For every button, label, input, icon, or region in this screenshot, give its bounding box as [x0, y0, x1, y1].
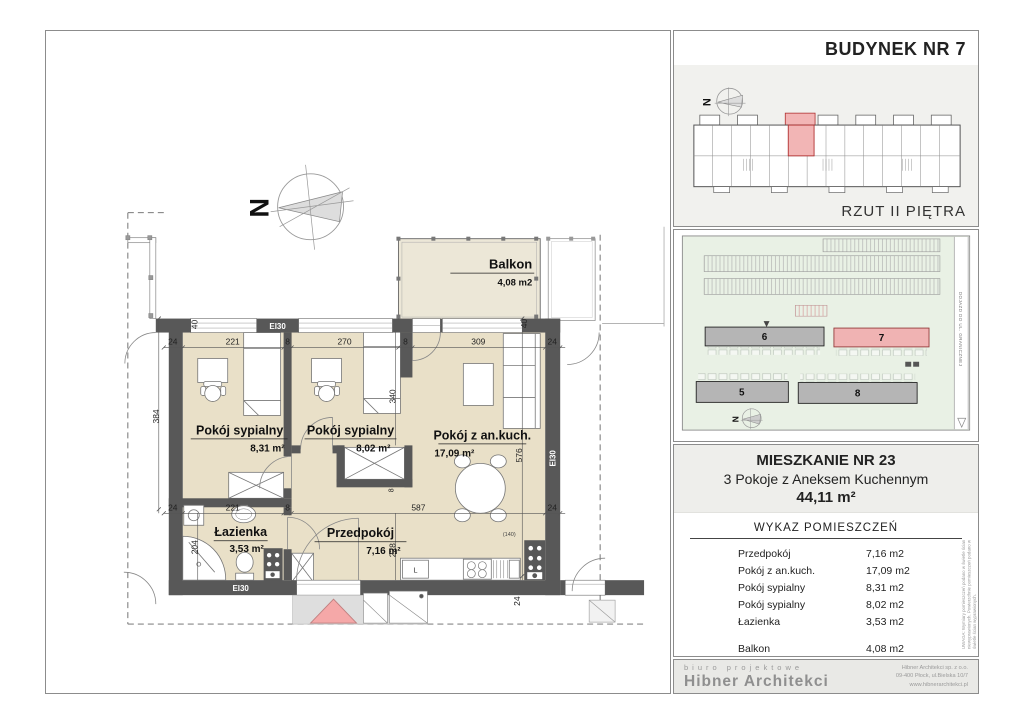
- adjacent-wing-lines: [602, 227, 664, 327]
- dim: (140): [503, 532, 516, 538]
- building-number: 5: [739, 387, 745, 398]
- hall-cabinet: [292, 553, 314, 582]
- studio-logo: biuro projektowe Hibner Architekci: [684, 663, 829, 691]
- toilet: [236, 552, 254, 580]
- room-list-title: WYKAZ POMIESZCZEŃ: [674, 522, 978, 534]
- floor-plan-svg: N Balkon 4,08 m2: [46, 31, 670, 693]
- svg-text:Łazienka: Łazienka: [214, 525, 268, 539]
- svg-text:8,31 m²: 8,31 m²: [250, 443, 285, 454]
- building-number: 7: [879, 333, 885, 344]
- dim: 8: [403, 337, 408, 347]
- svg-text:Pokój sypialny: Pokój sypialny: [307, 423, 394, 437]
- fire-rating-label: EI30: [269, 322, 286, 331]
- apartment-info-panel: MIESZKANIE NR 23 3 Pokoje z Aneksem Kuch…: [673, 444, 979, 657]
- balcony-label: Balkon: [489, 257, 532, 272]
- room-list: Przedpokój7,16 m2 Pokój z an.kuch.17,09 …: [674, 545, 978, 657]
- drawing-sheet: N Balkon 4,08 m2: [45, 28, 981, 696]
- building-title: BUDYNEK NR 7: [674, 31, 978, 65]
- apartment-title: MIESZKANIE NR 23: [674, 452, 978, 469]
- dim: 340: [387, 389, 397, 403]
- road-label: DOJAZD DO UL. GRANICZNEJ: [958, 292, 963, 366]
- dim: 587: [411, 502, 425, 512]
- dim: 8: [285, 502, 290, 512]
- svg-text:8,02 m²: 8,02 m²: [356, 443, 391, 454]
- apartment-total-area: 44,11 m²: [674, 489, 978, 506]
- kitchen: [400, 558, 520, 580]
- building-outline: [694, 113, 960, 192]
- apartment-header: MIESZKANIE NR 23 3 Pokoje z Aneksem Kuch…: [674, 445, 978, 513]
- stove: [463, 559, 491, 579]
- floor-plan-panel: N Balkon 4,08 m2: [45, 30, 671, 694]
- studio-address: Hibner Architekci sp. z o.o. 09-400 Płoc…: [896, 664, 968, 689]
- dim: 270: [337, 337, 351, 347]
- room-list-row: Pokój sypialny8,31 m2: [674, 579, 978, 596]
- svg-text:3,53 m²: 3,53 m²: [229, 544, 264, 555]
- coffee-table: [463, 363, 493, 405]
- building-panel: BUDYNEK NR 7 N: [673, 30, 979, 227]
- kitchen-sink: [509, 560, 519, 578]
- dim: 8: [285, 337, 290, 347]
- dim: 24: [547, 502, 557, 512]
- fridge-label: L: [413, 566, 417, 575]
- desk-chair: [198, 359, 228, 402]
- bed: [244, 333, 281, 416]
- dim: 40: [519, 319, 529, 329]
- balcony: Balkon 4,08 m2: [396, 237, 540, 321]
- north-compass: N: [245, 165, 354, 250]
- floor-caption: RZUT II PIĘTRA: [841, 203, 966, 220]
- dining-set: [454, 455, 506, 522]
- dim: 40: [190, 320, 200, 330]
- svg-text:Pokój sypialny: Pokój sypialny: [196, 423, 283, 437]
- divider: [690, 538, 962, 539]
- room-list-row: Pokój z an.kuch.17,09 m2: [674, 562, 978, 579]
- dim: 24: [168, 502, 178, 512]
- room-list-row: Pokój sypialny8,02 m2: [674, 597, 978, 614]
- building-number: 6: [762, 332, 768, 343]
- access-road: DOJAZD DO UL. GRANICZNEJ: [954, 237, 969, 429]
- site-plan-svg: DOJAZD DO UL. GRANICZNEJ: [674, 230, 978, 441]
- dim: 384: [151, 409, 161, 423]
- disclaimer-note: UWAGA: Wymiary pomieszczeń podano w świe…: [961, 529, 978, 649]
- site-plan-panel: DOJAZD DO UL. GRANICZNEJ: [673, 229, 979, 442]
- dim: 309: [471, 337, 485, 347]
- svg-text:17,09 m²: 17,09 m²: [434, 448, 475, 459]
- dim: 24: [168, 337, 178, 347]
- balcony-area: 4,08 m2: [497, 278, 532, 289]
- room-list-row: Łazienka3,53 m2: [674, 614, 978, 631]
- north-label: N: [702, 98, 714, 106]
- highlighted-unit-balcony: [785, 113, 815, 125]
- dim: 204: [190, 540, 200, 554]
- studio-name: Hibner Architekci: [684, 673, 829, 691]
- dim: 24: [512, 596, 522, 606]
- neighbour-railing: [126, 236, 156, 319]
- dim: 8: [388, 488, 395, 492]
- svg-text:Przedpokój: Przedpokój: [327, 526, 394, 540]
- svg-text:Pokój z an.kuch.: Pokój z an.kuch.: [433, 428, 531, 442]
- studio-tagline: biuro projektowe: [684, 663, 829, 672]
- title-block: biuro projektowe Hibner Architekci Hibne…: [673, 659, 979, 694]
- dim: 24: [547, 337, 557, 347]
- north-label: N: [245, 198, 275, 217]
- fire-rating-label: EI30: [549, 450, 558, 467]
- dim: 221: [226, 502, 240, 512]
- wardrobe: [229, 472, 284, 498]
- corridor: [293, 591, 616, 624]
- dim: 221: [226, 337, 240, 347]
- highlighted-unit: [788, 125, 814, 156]
- north-label: N: [730, 416, 740, 422]
- stair-doors: [363, 591, 427, 623]
- building-strip-svg: N: [674, 65, 978, 205]
- svg-text:7,16 m²: 7,16 m²: [366, 546, 401, 557]
- fire-rating-label: EI30: [232, 584, 249, 593]
- room-list-row: Balkon4,08 m2: [674, 640, 978, 657]
- apartment-subtitle: 3 Pokoje z Aneksem Kuchennym: [674, 471, 978, 487]
- neighbour-balcony: [546, 237, 595, 321]
- room-list-row: Przedpokój7,16 m2: [674, 545, 978, 562]
- washing-machine: [184, 505, 204, 525]
- desk-chair: [312, 359, 342, 402]
- dim: 576: [514, 448, 524, 462]
- building-number: 8: [855, 388, 861, 399]
- building-compass: N: [702, 87, 746, 116]
